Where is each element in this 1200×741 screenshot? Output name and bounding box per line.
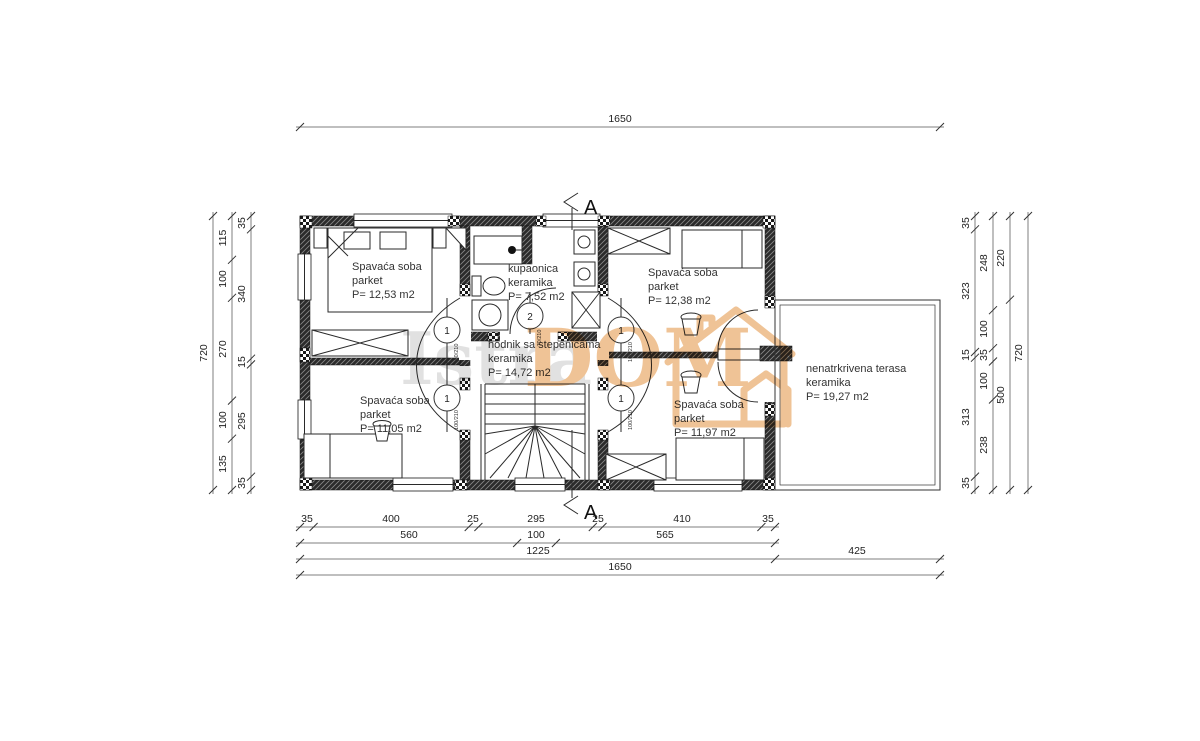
corner-shelf xyxy=(446,228,466,250)
svg-text:P= 11,97 m2: P= 11,97 m2 xyxy=(674,427,736,439)
svg-text:270: 270 xyxy=(217,340,229,358)
dimension-right-third: 220 500 xyxy=(995,212,1014,494)
nightstand xyxy=(433,228,446,248)
svg-text:1225: 1225 xyxy=(526,545,550,557)
section-marker-bottom: A xyxy=(564,430,598,524)
svg-text:100: 100 xyxy=(217,270,229,288)
room-label-bedroom-top-right: Spavaća soba parket P= 12,38 m2 xyxy=(648,267,719,307)
svg-text:Spavaća soba: Spavaća soba xyxy=(648,267,719,279)
svg-text:35: 35 xyxy=(236,477,248,489)
dimension-right-outer: 720 xyxy=(1013,212,1032,494)
svg-text:1650: 1650 xyxy=(608,113,632,125)
room-label-bathroom: kupaonica keramika P= 7,52 m2 xyxy=(508,263,565,303)
svg-text:313: 313 xyxy=(960,408,972,426)
svg-text:nenatrkrivena terasa: nenatrkrivena terasa xyxy=(806,363,907,375)
svg-text:720: 720 xyxy=(198,344,210,362)
svg-text:1650: 1650 xyxy=(608,561,632,573)
washbasin xyxy=(574,230,595,254)
washbasin xyxy=(574,262,595,286)
bed-bottom-right xyxy=(676,438,764,480)
door-size: 100/210 xyxy=(454,410,460,430)
stair-winders xyxy=(485,426,585,478)
svg-text:35: 35 xyxy=(978,349,990,361)
svg-text:323: 323 xyxy=(960,282,972,300)
dimension-left-outer: 720 xyxy=(198,212,217,494)
floor-plan-page: 1 80/210 1 100/210 2 70/210 1 100/210 1 … xyxy=(0,0,1200,741)
section-label: A xyxy=(584,197,598,219)
svg-text:100: 100 xyxy=(978,372,990,390)
svg-text:295: 295 xyxy=(527,513,545,525)
svg-text:220: 220 xyxy=(995,249,1007,267)
svg-text:560: 560 xyxy=(400,529,418,541)
room-label-terrace: nenatrkrivena terasa keramika P= 19,27 m… xyxy=(806,363,907,403)
door-size: 100/210 xyxy=(628,410,634,430)
svg-text:410: 410 xyxy=(673,513,691,525)
toilet xyxy=(472,276,505,296)
svg-text:295: 295 xyxy=(236,412,248,430)
pillow xyxy=(344,232,370,249)
nightstand xyxy=(314,228,327,248)
svg-text:248: 248 xyxy=(978,254,990,272)
svg-text:35: 35 xyxy=(762,513,774,525)
room-label-bedroom-bottom-left: Spavaća soba parket P= 11,05 m2 xyxy=(360,395,431,435)
svg-text:100: 100 xyxy=(217,411,229,429)
svg-text:15: 15 xyxy=(236,356,248,368)
svg-text:25: 25 xyxy=(592,513,604,525)
dimension-left-inner: 35 340 15 295 35 xyxy=(236,212,255,494)
svg-text:400: 400 xyxy=(382,513,400,525)
svg-text:kupaonica: kupaonica xyxy=(508,263,559,275)
svg-text:35: 35 xyxy=(960,217,972,229)
svg-text:500: 500 xyxy=(995,386,1007,404)
svg-text:35: 35 xyxy=(301,513,313,525)
shower-head-icon xyxy=(508,246,516,254)
dimension-top: 1650 xyxy=(296,113,944,131)
svg-text:35: 35 xyxy=(236,217,248,229)
svg-text:115: 115 xyxy=(217,229,229,246)
bed-top-right xyxy=(682,230,762,268)
svg-text:keramika: keramika xyxy=(508,277,554,289)
wall-shower-stub xyxy=(522,226,532,264)
svg-text:238: 238 xyxy=(978,436,990,454)
svg-text:100: 100 xyxy=(527,529,545,541)
dimension-right-inner: 35 323 15 313 35 xyxy=(960,212,979,494)
svg-text:100: 100 xyxy=(978,320,990,338)
svg-text:425: 425 xyxy=(848,545,866,557)
svg-text:565: 565 xyxy=(656,529,674,541)
svg-text:720: 720 xyxy=(1013,344,1025,362)
wardrobe-bottom-right xyxy=(606,454,666,480)
dimension-left-middle: 115 100 270 100 135 xyxy=(217,212,236,494)
svg-text:keramika: keramika xyxy=(806,377,852,389)
pillow xyxy=(380,232,406,249)
dimension-bottom-chain4: 1650 xyxy=(296,561,944,579)
svg-text:P= 7,52 m2: P= 7,52 m2 xyxy=(508,291,565,303)
svg-text:P= 12,38 m2: P= 12,38 m2 xyxy=(648,295,711,307)
svg-text:340: 340 xyxy=(236,285,248,303)
svg-text:parket: parket xyxy=(352,275,383,287)
room-label-bedroom-bottom-right: Spavaća soba parket P= 11,97 m2 xyxy=(674,399,745,439)
svg-text:25: 25 xyxy=(467,513,479,525)
svg-text:P= 19,27 m2: P= 19,27 m2 xyxy=(806,391,869,403)
wardrobe-top-left xyxy=(312,330,408,356)
svg-text:Spavaća soba: Spavaća soba xyxy=(352,261,423,273)
svg-text:15: 15 xyxy=(960,349,972,361)
svg-text:parket: parket xyxy=(648,281,679,293)
wardrobe-top-right xyxy=(608,228,670,254)
svg-text:P= 12,53 m2: P= 12,53 m2 xyxy=(352,289,415,301)
svg-text:parket: parket xyxy=(360,409,391,421)
svg-text:35: 35 xyxy=(960,477,972,489)
floor-plan-drawing: 1 80/210 1 100/210 2 70/210 1 100/210 1 … xyxy=(0,0,1200,741)
svg-text:135: 135 xyxy=(217,455,229,473)
svg-text:P= 11,05 m2: P= 11,05 m2 xyxy=(360,423,422,435)
